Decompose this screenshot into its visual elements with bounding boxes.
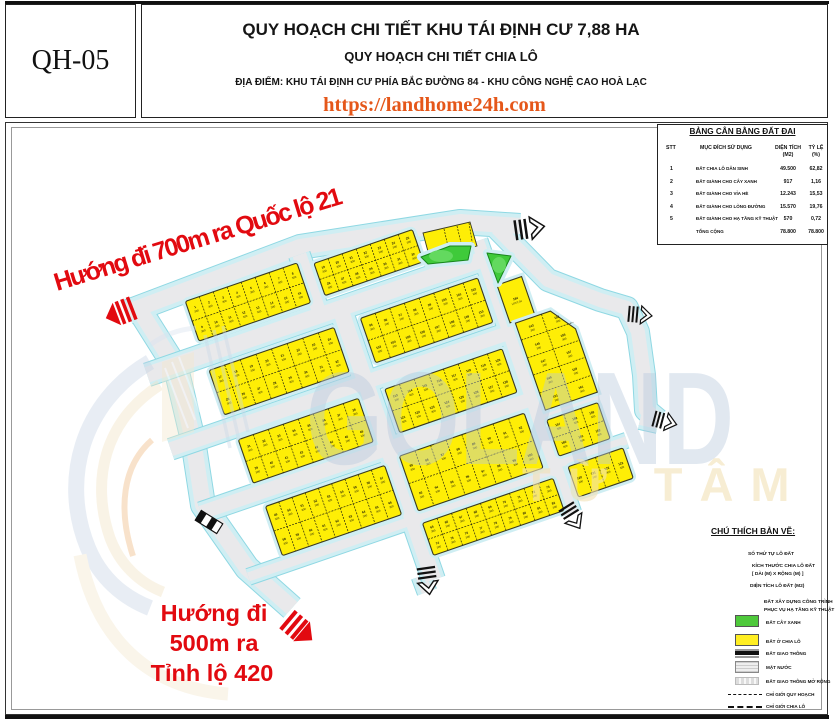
svg-text:TỪ TÂM: TỪ TÂM xyxy=(522,458,807,511)
svg-text:500m ra: 500m ra xyxy=(170,630,260,656)
svg-text:Hướng đi: Hướng đi xyxy=(161,600,268,626)
svg-text:Tỉnh lộ 420: Tỉnh lộ 420 xyxy=(151,660,274,686)
